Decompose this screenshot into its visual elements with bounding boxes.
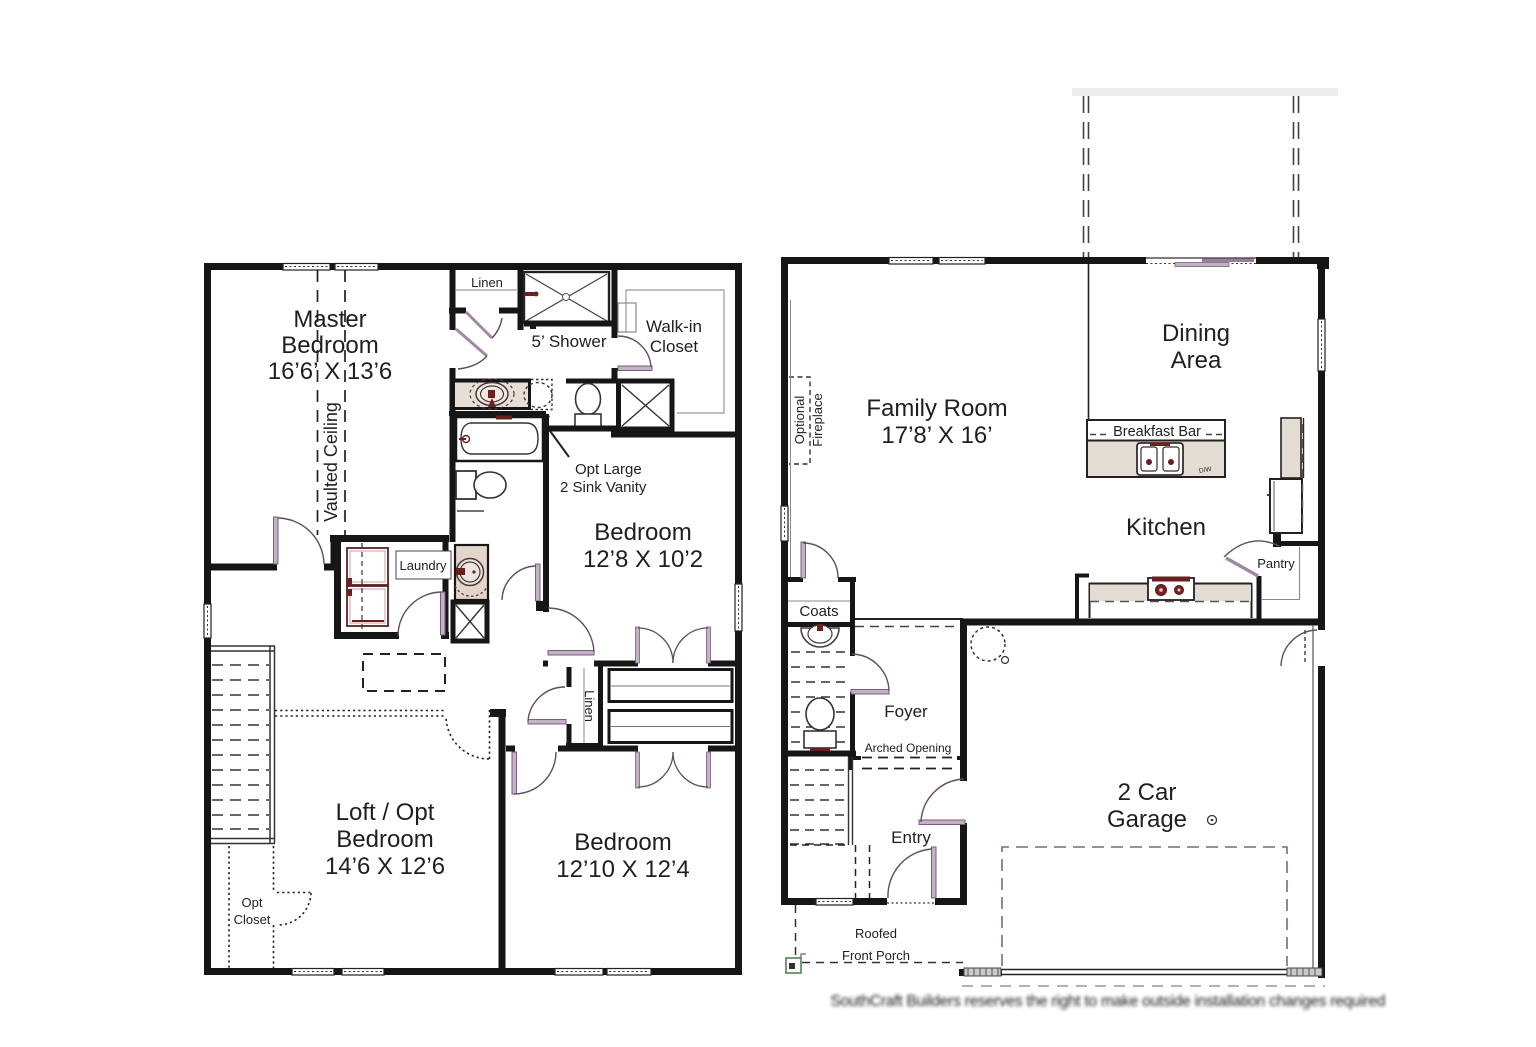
svg-text:Coats: Coats [799, 603, 838, 620]
svg-text:Garage: Garage [1107, 806, 1187, 833]
svg-text:Kitchen: Kitchen [1126, 514, 1206, 541]
svg-text:12’8 X 10’2: 12’8 X 10’2 [583, 546, 703, 573]
svg-text:Breakfast Bar: Breakfast Bar [1113, 424, 1201, 440]
svg-text:17’8’ X 16’: 17’8’ X 16’ [881, 422, 992, 449]
svg-text:Opt: Opt [242, 895, 263, 910]
svg-text:Front Porch: Front Porch [842, 948, 910, 963]
svg-text:Opt Large: Opt Large [575, 461, 642, 478]
svg-text:2 Car: 2 Car [1118, 779, 1177, 806]
svg-text:Loft / Opt: Loft / Opt [336, 799, 435, 826]
svg-text:Bedroom: Bedroom [336, 826, 433, 853]
svg-text:16’6’ X 13’6: 16’6’ X 13’6 [268, 358, 393, 385]
svg-text:Vaulted Ceiling: Vaulted Ceiling [321, 402, 341, 522]
svg-text:Entry: Entry [891, 828, 931, 847]
svg-text:Closet: Closet [650, 337, 698, 356]
svg-text:2 Sink Vanity: 2 Sink Vanity [560, 479, 647, 496]
svg-text:Arched Opening: Arched Opening [865, 741, 952, 755]
svg-text:5’ Shower: 5’ Shower [532, 332, 607, 351]
svg-text:Pantry: Pantry [1257, 556, 1295, 571]
svg-text:Bedroom: Bedroom [594, 519, 691, 546]
svg-text:Fireplace: Fireplace [810, 393, 825, 446]
svg-text:12’10 X 12’4: 12’10 X 12’4 [556, 856, 689, 883]
svg-text:Linen: Linen [582, 690, 597, 722]
svg-text:Closet: Closet [234, 912, 271, 927]
svg-text:SouthCraft Builders reserves t: SouthCraft Builders reserves the right t… [831, 993, 1386, 1010]
svg-text:14’6 X 12’6: 14’6 X 12’6 [325, 853, 445, 880]
svg-text:Roofed: Roofed [855, 926, 897, 941]
svg-text:Bedroom: Bedroom [281, 332, 378, 359]
svg-text:Dining: Dining [1162, 320, 1230, 347]
svg-text:Master: Master [293, 306, 366, 333]
svg-text:Foyer: Foyer [884, 702, 928, 721]
svg-text:Optional: Optional [792, 396, 807, 445]
svg-text:Laundry: Laundry [400, 558, 447, 573]
svg-text:Bedroom: Bedroom [574, 829, 671, 856]
svg-text:Family Room: Family Room [866, 395, 1007, 422]
svg-text:Area: Area [1171, 347, 1222, 374]
svg-text:Linen: Linen [471, 275, 503, 290]
svg-text:Walk-in: Walk-in [646, 317, 702, 336]
